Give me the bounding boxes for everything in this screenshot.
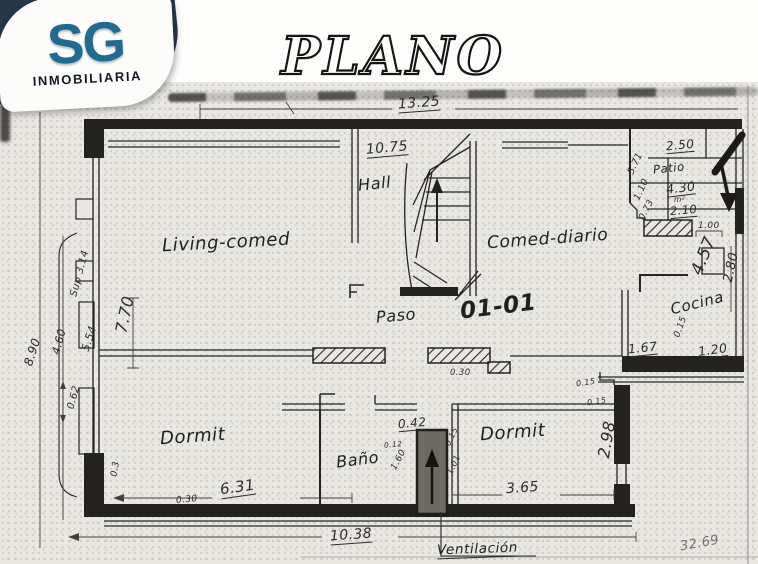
dim-patio-fondo: 2.10 (669, 202, 697, 219)
dim-cocina-ancho: 1.67 (627, 339, 658, 358)
room-label-hall: Hall (357, 172, 392, 194)
note-ventilacion: Ventilación (437, 540, 519, 560)
agency-logo: SG INMOBILIARIA (0, 0, 197, 123)
dim-muro-030-a: 0.30 (176, 494, 198, 506)
room-label-paso: Paso (375, 304, 416, 326)
logo-initials: SG (46, 16, 125, 69)
dim-interior-superior: 10.75 (365, 138, 408, 159)
logo-leaf-shape: SG INMOBILIARIA (0, 0, 177, 113)
page-title: PLANO (238, 20, 548, 94)
dim-frente-superior: 13.25 (397, 94, 440, 114)
dim-patio-ancho: 2.50 (665, 137, 695, 154)
scanned-floorplan-page: Living-comed Hall Comed-diario Paso 01-0… (0, 0, 758, 564)
page-title-text: PLANO (279, 26, 505, 87)
dim-muro-030-b: 0.30 (450, 368, 471, 378)
dim-conducto-ancho: 0.42 (397, 415, 427, 432)
dim-frente-inferior: 10.38 (329, 526, 372, 546)
dim-patio-100: 1.00 (698, 221, 720, 231)
dim-dorm-der-ancho: 3.65 (505, 479, 539, 497)
